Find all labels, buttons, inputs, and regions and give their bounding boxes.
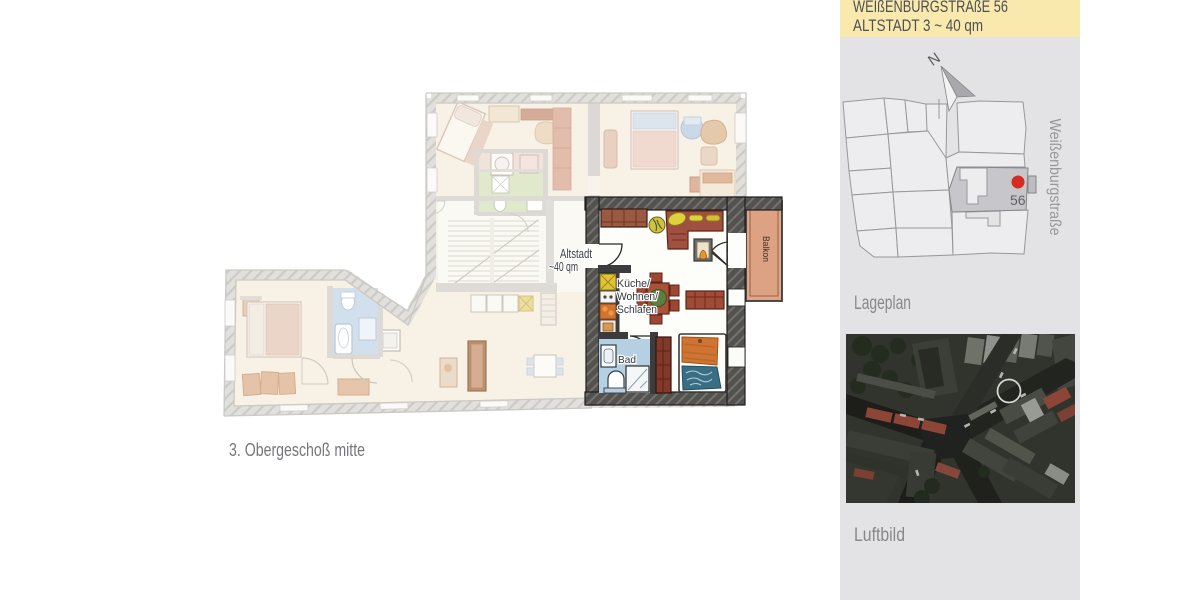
svg-text:3. Obergeschoß mitte: 3. Obergeschoß mitte — [229, 440, 365, 460]
svg-text:~40 qm: ~40 qm — [549, 260, 578, 274]
svg-text:Bad: Bad — [618, 354, 636, 366]
svg-text:WEIßENBURGSTRAßE 56: WEIßENBURGSTRAßE 56 — [853, 0, 1008, 16]
svg-text:ALTSTADT 3 ~ 40 qm: ALTSTADT 3 ~ 40 qm — [853, 17, 983, 35]
svg-text:Altstadt: Altstadt — [560, 247, 592, 261]
svg-text:Schlafen: Schlafen — [617, 304, 657, 316]
svg-text:Balkon: Balkon — [760, 236, 771, 262]
svg-text:Lageplan: Lageplan — [854, 293, 911, 314]
svg-text:Luftbild: Luftbild — [854, 525, 905, 546]
svg-text:Wohnen/: Wohnen/ — [617, 291, 659, 303]
svg-text:Weißenburgstraße: Weißenburgstraße — [1046, 119, 1063, 236]
svg-text:56: 56 — [1010, 192, 1026, 208]
svg-text:Küche/: Küche/ — [617, 278, 651, 290]
